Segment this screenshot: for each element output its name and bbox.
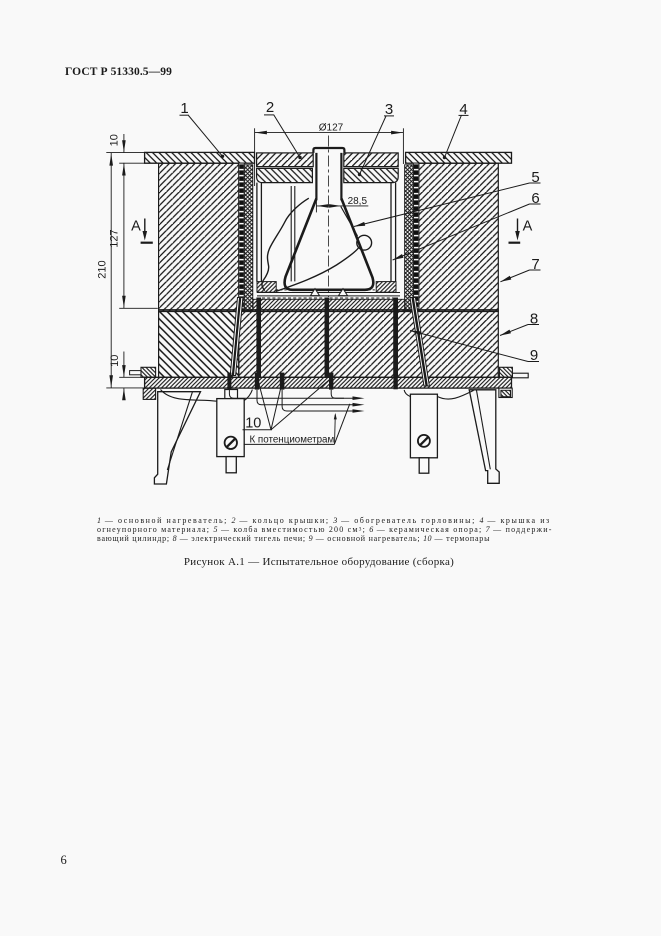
svg-text:6: 6 xyxy=(531,190,539,207)
svg-text:А: А xyxy=(131,219,141,235)
svg-text:9: 9 xyxy=(530,347,538,364)
svg-text:10: 10 xyxy=(108,134,120,146)
svg-text:К потенциометрам: К потенциометрам xyxy=(250,434,335,445)
svg-text:8: 8 xyxy=(530,311,538,328)
svg-text:28,5: 28,5 xyxy=(348,196,368,207)
svg-text:5: 5 xyxy=(531,169,539,186)
svg-text:А: А xyxy=(523,219,533,235)
svg-text:10: 10 xyxy=(245,415,261,431)
svg-text:210: 210 xyxy=(97,260,109,278)
svg-text:2: 2 xyxy=(266,99,274,116)
svg-text:3: 3 xyxy=(385,101,393,118)
svg-text:127: 127 xyxy=(108,229,120,247)
svg-text:10: 10 xyxy=(109,355,121,367)
svg-text:1: 1 xyxy=(180,100,188,117)
svg-text:Ø127: Ø127 xyxy=(319,122,344,133)
svg-text:4: 4 xyxy=(459,101,467,118)
svg-text:7: 7 xyxy=(531,256,539,273)
